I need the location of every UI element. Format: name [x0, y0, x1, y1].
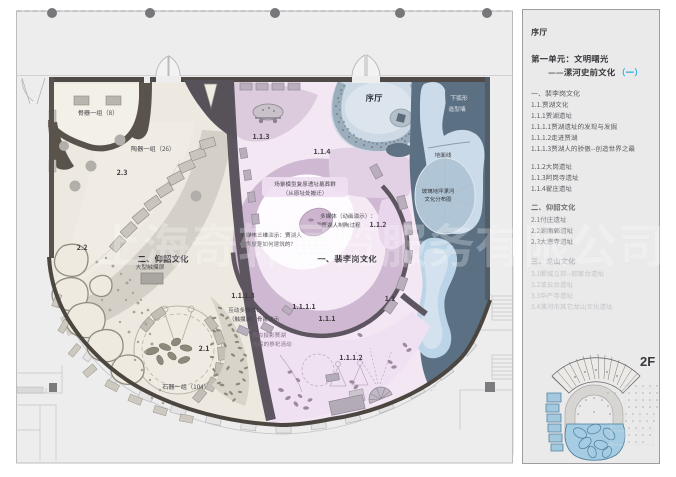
svg-text:2F: 2F [640, 354, 655, 369]
